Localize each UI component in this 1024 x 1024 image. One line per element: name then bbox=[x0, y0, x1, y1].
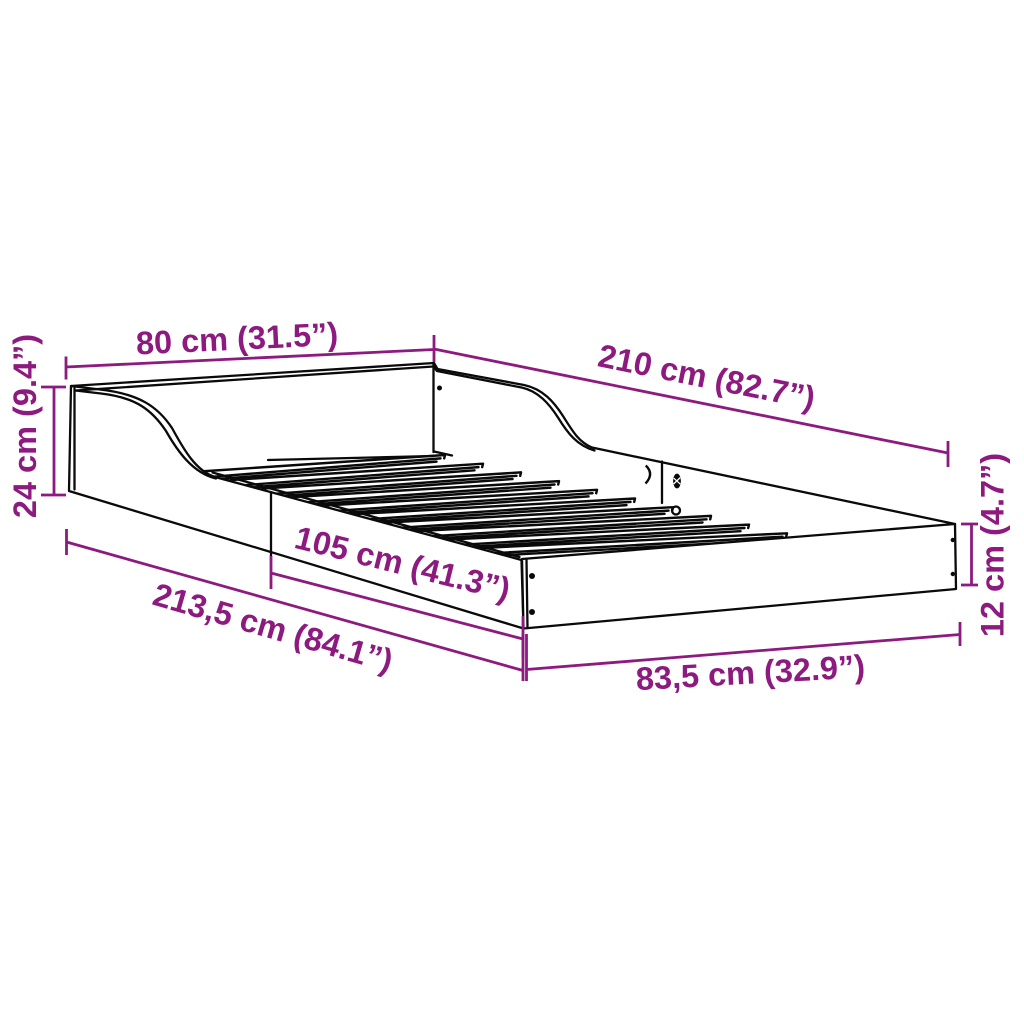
svg-text:12 cm (4.7”): 12 cm (4.7”) bbox=[975, 453, 1011, 637]
svg-text:24 cm (9.4”): 24 cm (9.4”) bbox=[7, 334, 43, 518]
